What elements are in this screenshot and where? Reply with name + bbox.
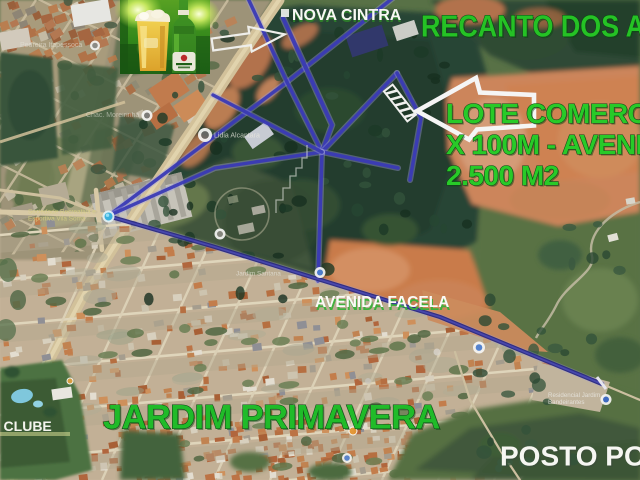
svg-text:RECANTO DOS A: RECANTO DOS A — [421, 9, 640, 44]
svg-text:Lidia Alcantara: Lidia Alcantara — [214, 133, 260, 140]
svg-text:Bandeirantes: Bandeirantes — [548, 399, 584, 406]
svg-text:M CLUBE: M CLUBE — [0, 418, 52, 434]
svg-text:Esportiva Vila Soma: Esportiva Vila Soma — [28, 216, 86, 223]
svg-text:Sociedade Recreativa e: Sociedade Recreativa e — [28, 209, 96, 216]
svg-text:X 100M - AVENI: X 100M - AVENI — [446, 129, 640, 160]
svg-text:Chac. Moreirinha: Chac. Moreirinha — [86, 112, 139, 119]
svg-text:JARDIM PRIMAVERA: JARDIM PRIMAVERA — [103, 399, 440, 437]
svg-text:NOVA CINTRA: NOVA CINTRA — [292, 7, 402, 24]
svg-text:2.500 M2: 2.500 M2 — [446, 160, 559, 191]
svg-text:Pedreira Itapessoca: Pedreira Itapessoca — [20, 42, 82, 49]
svg-text:AVENIDA FACELA: AVENIDA FACELA — [315, 294, 449, 311]
svg-text:LOTE COMERC: LOTE COMERC — [446, 98, 640, 129]
svg-text:Residencial Jardim: Residencial Jardim — [548, 392, 600, 399]
svg-text:POSTO PO: POSTO PO — [500, 441, 640, 472]
svg-text:Jardim Santana: Jardim Santana — [236, 271, 281, 278]
